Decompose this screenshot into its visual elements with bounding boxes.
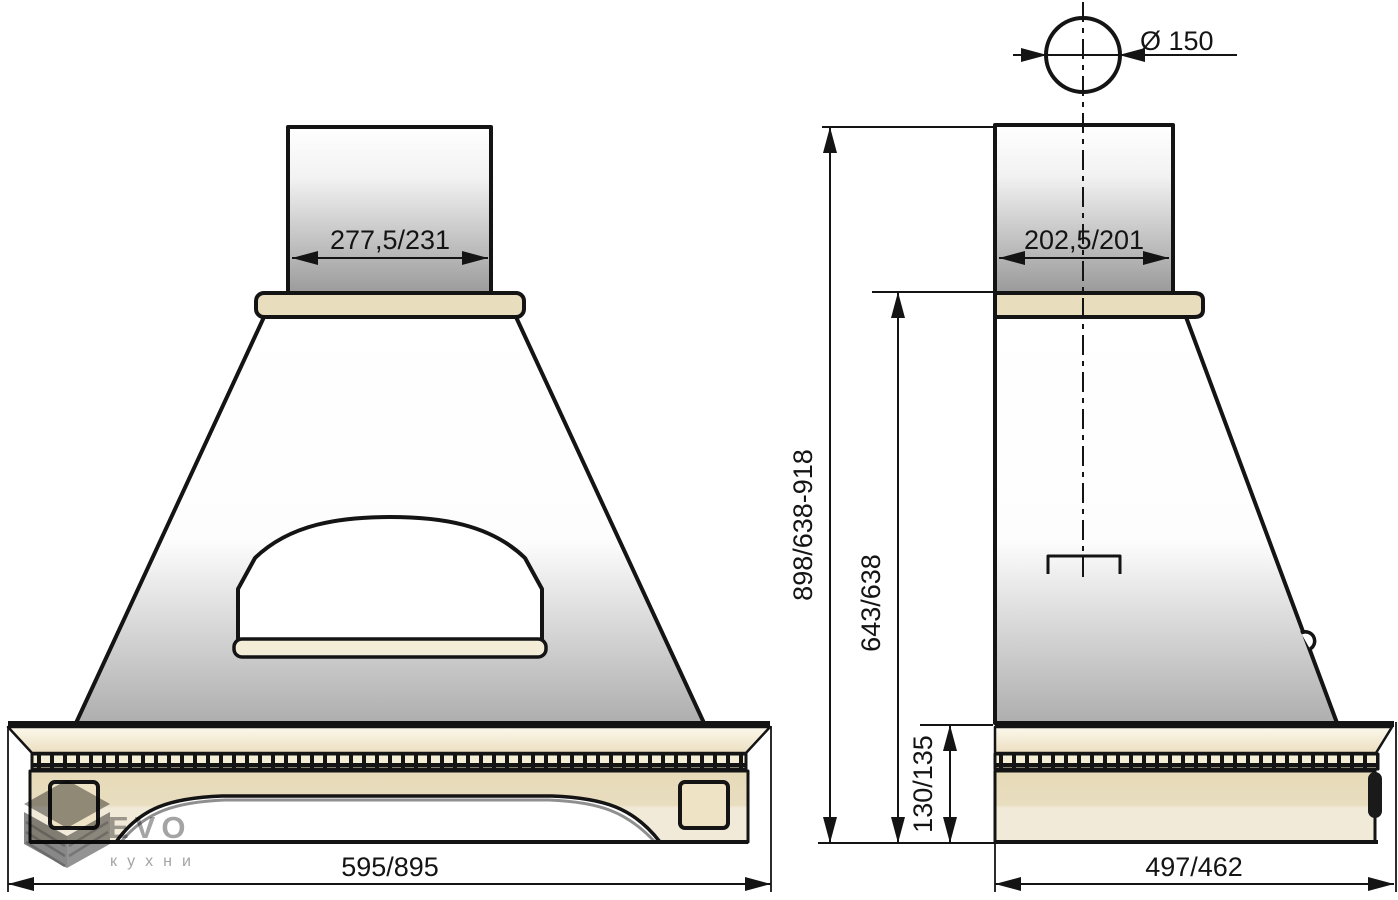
front-dentil-row	[32, 754, 746, 769]
side-body-height-label: 643/638	[856, 554, 886, 652]
arrowhead	[943, 725, 957, 751]
side-crown-molding	[995, 727, 1392, 753]
arrowhead	[995, 877, 1021, 891]
side-panel-end-molding	[1368, 772, 1382, 818]
side-chimney-depth-label: 202,5/201	[1024, 225, 1144, 255]
side-canopy-body	[995, 317, 1337, 723]
drawing-canvas: 277,5/231 595/895 Ø 150 202,5/201	[0, 0, 1398, 900]
watermark-brand-text: EVO	[108, 810, 191, 845]
side-cap-plate	[995, 293, 1203, 317]
side-dentil-row	[995, 754, 1378, 769]
arrowhead	[1368, 877, 1394, 891]
arrowhead	[8, 877, 34, 891]
arrowhead	[823, 127, 837, 153]
arrowhead	[891, 817, 905, 843]
side-view: Ø 150 202,5/201 898/638-918 643/638	[788, 2, 1396, 892]
technical-drawing-range-hood: 277,5/231 595/895 Ø 150 202,5/201	[0, 0, 1398, 900]
arrowhead	[745, 877, 771, 891]
front-arch-niche	[238, 517, 542, 642]
front-chimney-width-label: 277,5/231	[330, 225, 450, 255]
front-right-rosette	[680, 782, 728, 828]
arrowhead	[1021, 48, 1047, 62]
front-view: 277,5/231 595/895	[8, 127, 771, 892]
side-plinth-height-label: 130/135	[908, 735, 938, 833]
side-overall-depth-label: 497/462	[1145, 852, 1243, 882]
front-overall-width-label: 595/895	[341, 852, 439, 882]
arrowhead	[891, 292, 905, 318]
arrowhead	[943, 817, 957, 843]
side-valance-panel	[995, 771, 1375, 842]
front-crown-molding	[8, 727, 770, 753]
watermark-subtitle-text: кухни	[110, 853, 201, 870]
front-arch-sill	[234, 639, 546, 657]
arrowhead	[823, 817, 837, 843]
front-chimney	[288, 127, 491, 297]
side-duct-diameter-label: Ø 150	[1140, 26, 1214, 56]
front-cap-plate	[256, 293, 524, 317]
side-overall-height-label: 898/638-918	[788, 449, 818, 601]
